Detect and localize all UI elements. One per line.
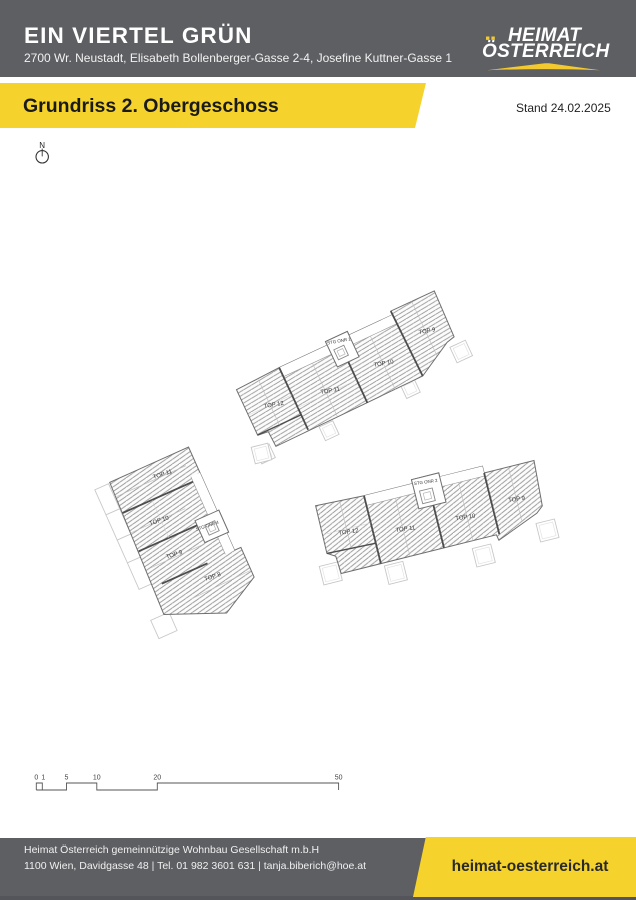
svg-text:N: N (39, 141, 45, 150)
svg-text:0: 0 (34, 775, 38, 782)
svg-text:20: 20 (153, 775, 161, 782)
svg-text:10: 10 (93, 775, 101, 782)
svg-text:1: 1 (41, 775, 45, 782)
svg-text:50: 50 (335, 775, 343, 782)
svg-text:5: 5 (65, 775, 69, 782)
